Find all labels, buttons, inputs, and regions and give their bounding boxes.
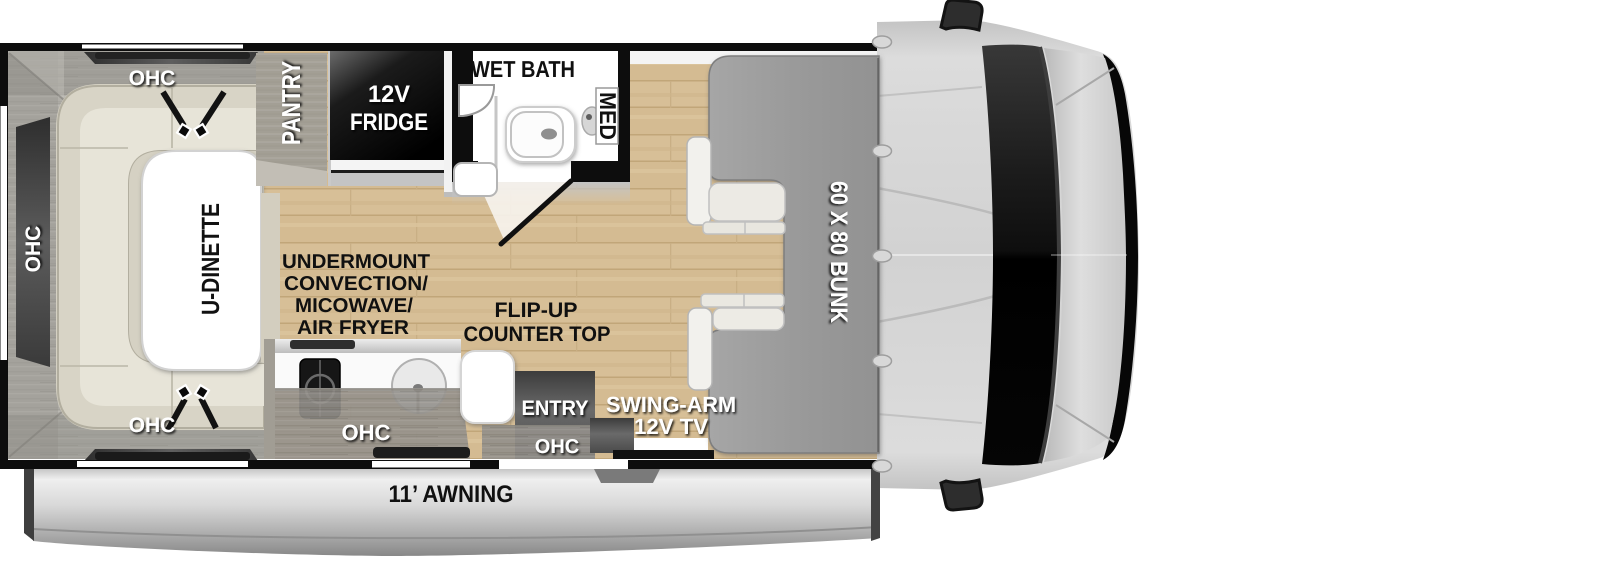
svg-text:11’ AWNING: 11’ AWNING — [389, 481, 514, 508]
svg-text:OHC: OHC — [129, 414, 176, 437]
svg-text:AIR FRYER: AIR FRYER — [297, 317, 410, 339]
svg-text:OHC: OHC — [342, 420, 391, 445]
svg-text:PANTRY: PANTRY — [276, 61, 306, 145]
svg-text:OHC: OHC — [535, 436, 579, 458]
svg-text:UNDERMOUNT: UNDERMOUNT — [282, 251, 430, 273]
svg-text:OHC: OHC — [22, 226, 45, 273]
svg-text:U-DINETTE: U-DINETTE — [197, 203, 225, 315]
svg-text:FRIDGE: FRIDGE — [350, 109, 428, 136]
svg-text:CONVECTION/: CONVECTION/ — [284, 273, 428, 295]
svg-text:12V TV: 12V TV — [634, 414, 708, 439]
svg-text:12V: 12V — [368, 81, 410, 108]
svg-text:ENTRY: ENTRY — [522, 397, 589, 420]
svg-text:FLIP-UP: FLIP-UP — [495, 299, 578, 322]
svg-text:OHC: OHC — [129, 67, 176, 90]
svg-text:MICOWAVE/: MICOWAVE/ — [295, 295, 413, 317]
svg-text:MED: MED — [595, 92, 621, 140]
svg-text:60 X 80 BUNK: 60 X 80 BUNK — [825, 181, 852, 324]
svg-text:COUNTER TOP: COUNTER TOP — [464, 323, 611, 346]
svg-text:WET BATH: WET BATH — [471, 56, 575, 82]
